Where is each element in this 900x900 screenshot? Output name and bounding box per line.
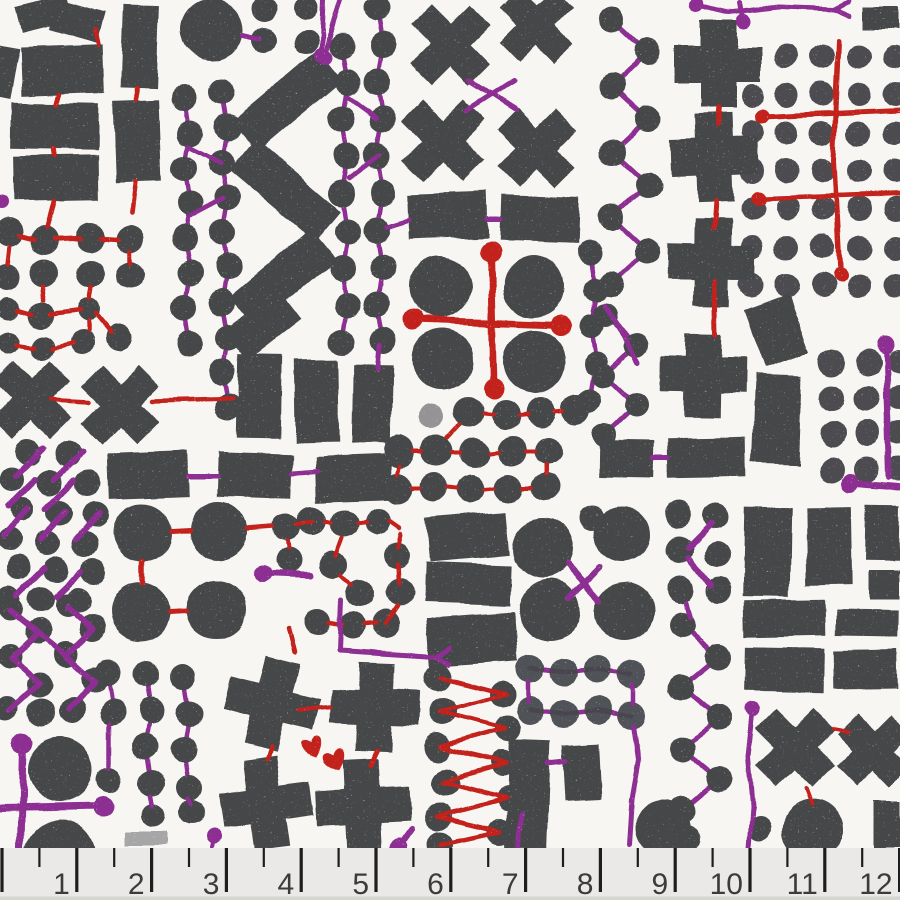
- motif-dot-stamp: [421, 473, 449, 501]
- motif-dot-stamp: [811, 273, 835, 297]
- motif-dot-stamp: [139, 769, 165, 795]
- motif-rectangle-stamp: [14, 154, 99, 201]
- motif-dot-stamp: [453, 397, 483, 427]
- motif-dot-stamp: [819, 385, 845, 411]
- motif-dot-stamp: [177, 330, 203, 356]
- motif-dot-stamp: [599, 205, 625, 231]
- motif-dot-stamp: [550, 700, 578, 728]
- motif-connector-line: [292, 472, 318, 474]
- line-blob-end: [483, 378, 504, 399]
- motif-dot-stamp: [370, 32, 396, 58]
- motif-circle-stamp: [503, 331, 565, 393]
- motif-dot-stamp: [422, 436, 452, 466]
- motif-dot-stamp: [592, 363, 616, 387]
- motif-dot-stamp: [171, 155, 197, 181]
- motif-dot-stamp: [847, 197, 871, 221]
- motif-rectangle-stamp: [834, 649, 898, 688]
- motif-circle-stamp: [413, 330, 473, 390]
- line-blob-end: [480, 242, 501, 263]
- motif-dot-stamp: [635, 172, 661, 198]
- motif-connector-line: [490, 252, 493, 388]
- motif-connector-line: [364, 624, 376, 625]
- motif-dot-stamp: [364, 291, 390, 317]
- motif-circle-stamp: [113, 504, 171, 562]
- motif-circle-stamp: [187, 580, 247, 640]
- ruler-number: 8: [577, 868, 594, 900]
- motif-dot-stamp: [579, 505, 605, 531]
- motif-circle-stamp: [519, 579, 581, 641]
- motif-circle-stamp: [27, 737, 93, 803]
- line-blob-end: [735, 15, 750, 30]
- motif-dot-stamp: [599, 139, 625, 165]
- motif-dot-stamp: [496, 435, 526, 465]
- motif-dot-stamp: [847, 159, 871, 183]
- motif-dot-stamp: [384, 436, 416, 468]
- motif-rectangle-stamp: [745, 599, 826, 637]
- motif-connector-line: [555, 411, 564, 412]
- motif-connector-line: [56, 238, 80, 239]
- motif-dot-stamp: [550, 659, 578, 687]
- motif-connector-line: [0, 807, 103, 809]
- motif-dot-stamp: [811, 121, 835, 145]
- motif-dot-stamp: [599, 73, 625, 99]
- motif-connector-line: [89, 286, 91, 299]
- motif-rectangle-stamp: [107, 451, 189, 499]
- motif-dot-stamp: [28, 698, 56, 726]
- ruler-number: 7: [502, 868, 519, 900]
- motif-connector-line: [43, 285, 45, 300]
- motif-rectangle-stamp: [563, 743, 602, 801]
- motif-dot-stamp: [133, 661, 159, 687]
- motif-rectangle-stamp: [752, 375, 801, 465]
- motif-circle-stamp: [409, 257, 471, 319]
- motif-connector-line: [377, 346, 379, 368]
- motif-connector-line: [52, 400, 88, 402]
- motif-dot-stamp: [329, 106, 355, 132]
- motif-dot-stamp: [370, 328, 396, 354]
- motif-dot-stamp: [578, 240, 602, 264]
- motif-dot-stamp: [775, 121, 799, 145]
- motif-rectangle-stamp: [351, 364, 392, 445]
- motif-dot-stamp: [329, 32, 355, 58]
- motif-connector-line: [713, 200, 715, 228]
- motif-dot-stamp: [329, 254, 355, 280]
- motif-dot-stamp: [635, 106, 661, 132]
- motif-dot-stamp: [335, 69, 361, 95]
- motif-dot-stamp: [811, 159, 835, 183]
- motif-rectangle-stamp: [866, 504, 900, 562]
- motif-dot-stamp: [171, 295, 197, 321]
- motif-connector-line: [53, 148, 54, 156]
- ruler-number: 4: [278, 868, 295, 900]
- motif-rectangle-stamp: [426, 511, 510, 562]
- motif-connector-line: [326, 521, 332, 522]
- motif-dot-stamp: [855, 421, 881, 447]
- motif-dot-stamp: [75, 470, 101, 496]
- motif-dot-stamp: [420, 405, 444, 429]
- motif-dot-stamp: [100, 699, 126, 725]
- line-blob-end: [252, 566, 270, 584]
- motif-dot-stamp: [6, 556, 30, 580]
- motif-dot-stamp: [31, 258, 59, 286]
- motif-dot-stamp: [209, 289, 235, 315]
- motif-dot-stamp: [775, 45, 799, 69]
- motif-dot-stamp: [176, 700, 202, 726]
- motif-rectangle-stamp: [835, 609, 899, 637]
- motif-rectangle-stamp: [805, 507, 852, 585]
- line-blob-end: [403, 311, 424, 332]
- motif-circle-stamp: [181, 0, 243, 61]
- motif-dot-stamp: [775, 159, 799, 183]
- motif-connector-line: [548, 760, 566, 762]
- motif-dot-stamp: [674, 825, 700, 851]
- motif-dot-stamp: [364, 69, 390, 95]
- motif-dot-stamp: [370, 180, 396, 206]
- motif-dot-stamp: [170, 663, 196, 689]
- motif-circle-stamp: [513, 518, 573, 578]
- motif-dot-stamp: [459, 437, 489, 467]
- ruler-number: 5: [352, 868, 369, 900]
- ruler-number: 12: [859, 868, 892, 900]
- motif-dot-stamp: [526, 397, 556, 427]
- motif-dot-stamp: [43, 557, 69, 583]
- motif-rectangle-stamp: [121, 5, 160, 88]
- line-blob-end: [12, 732, 33, 753]
- ruler-number: 10: [710, 868, 743, 900]
- motif-dot-stamp: [272, 513, 300, 541]
- motif-dot-stamp: [133, 733, 159, 759]
- motif-rectangle-stamp: [864, 8, 900, 30]
- ruler-number: 2: [128, 868, 145, 900]
- motif-rectangle-stamp: [113, 100, 162, 183]
- motif-connector-line: [398, 534, 401, 548]
- motif-dot-stamp: [305, 609, 331, 635]
- motif-dot-stamp: [77, 259, 105, 287]
- motif-dot-stamp: [624, 393, 648, 417]
- motif-dot-stamp: [811, 197, 835, 221]
- motif-dot-stamp: [811, 83, 835, 107]
- motif-dot-stamp: [275, 549, 301, 575]
- line-blob-end: [842, 474, 860, 492]
- motif-dot-stamp: [532, 473, 560, 501]
- motif-dot-stamp: [669, 674, 695, 700]
- fabric-swatch-image: in 123456789101112: [0, 0, 900, 900]
- motif-circle-stamp: [595, 583, 653, 641]
- motif-dot-stamp: [669, 798, 695, 824]
- motif-dot-stamp: [335, 143, 361, 169]
- motif-dot-stamp: [335, 217, 361, 243]
- motif-connector-line: [57, 95, 60, 104]
- motif-dot-stamp: [215, 254, 241, 280]
- motif-dot-stamp: [666, 502, 692, 528]
- motif-dot-stamp: [704, 542, 730, 568]
- motif-dot-stamp: [97, 767, 123, 793]
- motif-rectangle-stamp: [125, 832, 167, 845]
- motif-dot-stamp: [847, 235, 871, 259]
- motif-connector-line: [8, 247, 10, 265]
- motif-dot-stamp: [667, 577, 693, 603]
- motif-rectangle-stamp: [12, 103, 99, 149]
- ruler-number: 3: [203, 868, 220, 900]
- motif-dot-stamp: [847, 121, 871, 145]
- motif-connector-line: [287, 541, 288, 550]
- motif-dot-stamp: [847, 83, 871, 107]
- motif-dot-stamp: [171, 225, 197, 251]
- motif-dot-stamp: [383, 473, 413, 503]
- motif-dot-stamp: [495, 473, 523, 501]
- motif-connector-line: [486, 487, 495, 488]
- motif-dot-stamp: [516, 655, 544, 683]
- motif-rectangle-stamp: [745, 647, 826, 692]
- motif-connector-line: [518, 815, 521, 848]
- motif-dot-stamp: [847, 273, 871, 297]
- line-blob-end: [746, 703, 761, 718]
- ruler-number: 6: [427, 868, 444, 900]
- motif-connector-line: [170, 612, 187, 613]
- row-link-line: [530, 710, 632, 714]
- motif-connector-line: [171, 530, 189, 531]
- motif-dot-stamp: [27, 587, 53, 613]
- line-blob-end: [755, 110, 770, 125]
- motif-purple-dot: [206, 829, 222, 845]
- line-blob-end: [93, 797, 114, 818]
- motif-dot-stamp: [775, 235, 799, 259]
- motif-dot-stamp: [669, 736, 695, 762]
- motif-dot-stamp: [584, 696, 612, 724]
- motif-dot-stamp: [170, 737, 196, 763]
- motif-dot-stamp: [209, 219, 235, 245]
- motif-dot-stamp: [335, 291, 361, 317]
- motif-rectangle-stamp: [315, 455, 392, 502]
- motif-dot-stamp: [811, 45, 835, 69]
- fabric-pattern-svg: in 123456789101112: [0, 0, 900, 900]
- motif-connector-line: [398, 466, 400, 474]
- motif-connector-line: [886, 345, 890, 478]
- motif-dot-stamp: [740, 159, 764, 183]
- motif-connector-line: [299, 707, 330, 710]
- motif-rectangle-stamp: [869, 571, 900, 599]
- motif-circle-stamp: [502, 256, 564, 318]
- motif-dot-stamp: [294, 30, 318, 54]
- motif-dot-stamp: [740, 83, 764, 107]
- motif-dot-stamp: [534, 436, 562, 464]
- motif-connector-line: [358, 521, 366, 522]
- motif-dot-stamp: [209, 359, 235, 385]
- motif-dot-stamp: [706, 705, 732, 731]
- motif-dot-stamp: [562, 394, 592, 424]
- motif-rectangle-stamp: [743, 506, 792, 597]
- motif-dot-stamp: [592, 423, 616, 447]
- motif-dot-stamp: [706, 643, 732, 669]
- ruler-number: 1: [53, 868, 70, 900]
- motif-connector-line: [20, 742, 22, 848]
- motif-dot-stamp: [635, 40, 661, 66]
- motif-dot-stamp: [331, 509, 359, 537]
- line-blob-end: [318, 50, 333, 65]
- motif-dot-stamp: [819, 421, 845, 447]
- motif-rectangle-stamp: [499, 195, 581, 243]
- motif-dot-stamp: [329, 328, 355, 354]
- line-blob-end: [751, 192, 766, 207]
- motif-dot-stamp: [215, 114, 241, 140]
- motif-dot-stamp: [775, 83, 799, 107]
- motif-dot-stamp: [819, 457, 845, 483]
- motif-rectangle-stamp: [408, 192, 488, 241]
- motif-dot-stamp: [819, 349, 845, 375]
- motif-dot-stamp: [740, 273, 764, 297]
- motif-dot-stamp: [177, 120, 203, 146]
- motif-dot-stamp: [171, 85, 197, 111]
- motif-rectangle-stamp: [667, 437, 748, 478]
- motif-rectangle-stamp: [293, 359, 338, 444]
- motif-connector-line: [413, 321, 560, 326]
- motif-connector-line: [398, 565, 399, 583]
- motif-dot-stamp: [855, 349, 881, 375]
- motif-connector-line: [519, 413, 528, 414]
- motif-connector-line: [96, 30, 99, 44]
- motif-dot-stamp: [139, 697, 165, 723]
- motif-connector-line: [449, 487, 458, 488]
- motif-connector-line: [715, 281, 716, 333]
- motif-dot-stamp: [319, 552, 347, 580]
- motif-connector-line: [16, 344, 33, 347]
- motif-connector-line: [100, 237, 118, 238]
- motif-connector-line: [483, 413, 492, 414]
- motif-dot-stamp: [811, 235, 835, 259]
- motif-dot-stamp: [706, 767, 732, 793]
- motif-dot-stamp: [740, 235, 764, 259]
- row-link-line: [530, 669, 632, 673]
- motif-connector-line: [321, 0, 323, 55]
- motif-dot-stamp: [177, 260, 203, 286]
- line-blob-end: [833, 268, 848, 283]
- motif-connector-line: [150, 795, 152, 806]
- motif-dot-stamp: [599, 7, 625, 33]
- motif-dot-stamp: [584, 655, 612, 683]
- motif-rectangle-stamp: [874, 800, 900, 848]
- ruler-number: 11: [787, 868, 818, 900]
- motif-rectangle-stamp: [21, 44, 105, 97]
- motif-dot-stamp: [215, 324, 241, 350]
- motif-connector-line: [489, 451, 497, 452]
- motif-dot-stamp: [599, 271, 625, 297]
- ruler: in 123456789101112: [0, 848, 900, 900]
- motif-dot-stamp: [740, 121, 764, 145]
- motif-dot-stamp: [329, 180, 355, 206]
- motif-circle-stamp: [189, 501, 247, 559]
- motif-dot-stamp: [370, 254, 396, 280]
- motif-rectangle-stamp: [424, 562, 511, 605]
- motif-dot-stamp: [215, 184, 241, 210]
- motif-connector-line: [247, 526, 272, 528]
- motif-dot-stamp: [458, 474, 486, 502]
- motif-dot-stamp: [775, 273, 799, 297]
- motif-rectangle-stamp: [217, 452, 292, 499]
- motif-dot-stamp: [490, 399, 520, 429]
- motif-connector-line: [153, 399, 232, 401]
- motif-dot-stamp: [635, 238, 661, 264]
- motif-connector-line: [188, 798, 191, 804]
- ruler-number: 9: [652, 868, 669, 900]
- motif-dot-stamp: [855, 385, 881, 411]
- motif-dot-stamp: [209, 79, 235, 105]
- motif-rectangle-stamp: [236, 355, 281, 439]
- line-blob-end: [877, 336, 895, 354]
- line-blob-end: [550, 316, 571, 337]
- motif-dot-stamp: [847, 45, 871, 69]
- motif-dot-stamp: [365, 508, 391, 534]
- motif-circle-stamp: [110, 582, 170, 642]
- motif-connector-line: [716, 106, 718, 126]
